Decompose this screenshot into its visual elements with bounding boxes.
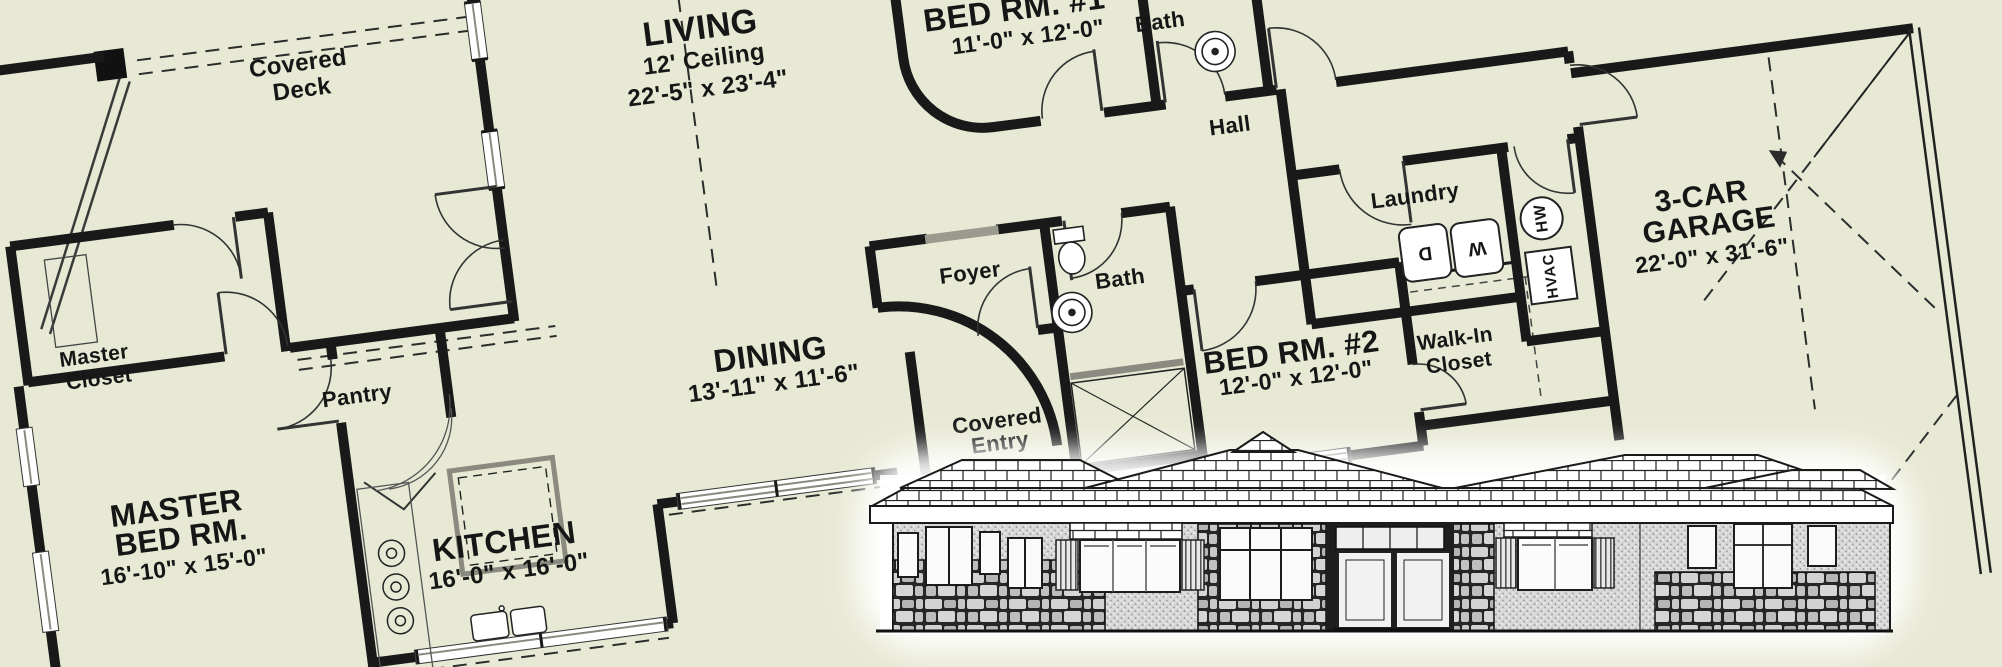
elevation-window-grid <box>1220 528 1312 600</box>
front-elevation-drawing <box>0 0 2002 667</box>
shutter-icon <box>1496 538 1516 588</box>
shutter-icon <box>1594 538 1614 588</box>
fascia-band <box>870 506 1893 523</box>
entry-door <box>1326 523 1454 632</box>
shutter-icon <box>1182 540 1204 590</box>
floor-plan-sheet: Covered Deck LIVING 12' Ceiling 22'-5" x… <box>0 0 2002 667</box>
shutter-icon <box>1056 540 1078 590</box>
front-elevation <box>856 432 1912 652</box>
elevation-window-shuttered-left <box>1056 523 1204 592</box>
